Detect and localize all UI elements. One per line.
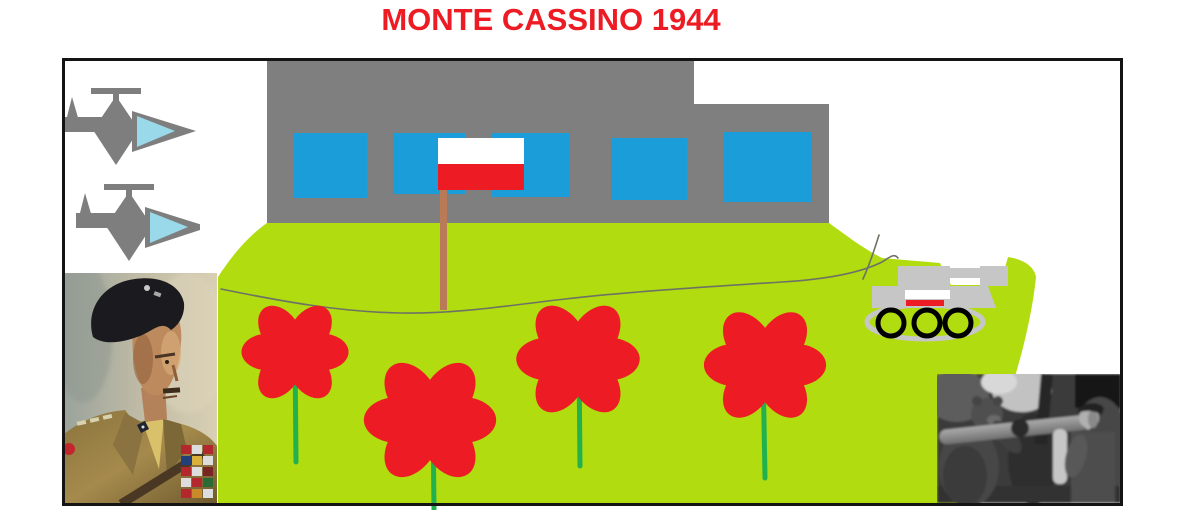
beret-badge — [144, 285, 150, 291]
tank-barrel — [950, 268, 980, 278]
fighter-planes — [60, 85, 200, 265]
general-portrait-photo — [63, 273, 217, 504]
poppy-2 — [364, 353, 496, 488]
arm-patch — [63, 443, 75, 455]
plane-1 — [63, 88, 196, 165]
plane-2 — [76, 184, 200, 261]
soldier-and-bear-photo — [937, 374, 1121, 503]
drawing-page: MONTE CASSINO 1944 — [0, 0, 1200, 510]
flag-red-stripe — [438, 164, 524, 190]
polish-flag — [438, 138, 524, 190]
tank-wheel-3 — [945, 310, 971, 336]
tank-wheel-2 — [914, 310, 940, 336]
tank-flag-white — [905, 290, 950, 299]
flag-white-stripe — [438, 138, 524, 164]
window-1 — [294, 133, 367, 198]
medal-ribbons — [181, 445, 213, 498]
monastery-annex-block — [694, 104, 829, 223]
tank — [860, 248, 1020, 344]
tank-turret — [898, 266, 950, 286]
bear-paw — [1011, 419, 1029, 437]
tank-barrel-end — [980, 266, 1008, 286]
tank-flag-red — [906, 300, 944, 306]
light-strip — [1053, 429, 1067, 484]
window-5 — [724, 132, 812, 202]
poppy-flowers — [230, 290, 840, 510]
window-4 — [611, 138, 687, 200]
tank-wheel-1 — [878, 310, 904, 336]
